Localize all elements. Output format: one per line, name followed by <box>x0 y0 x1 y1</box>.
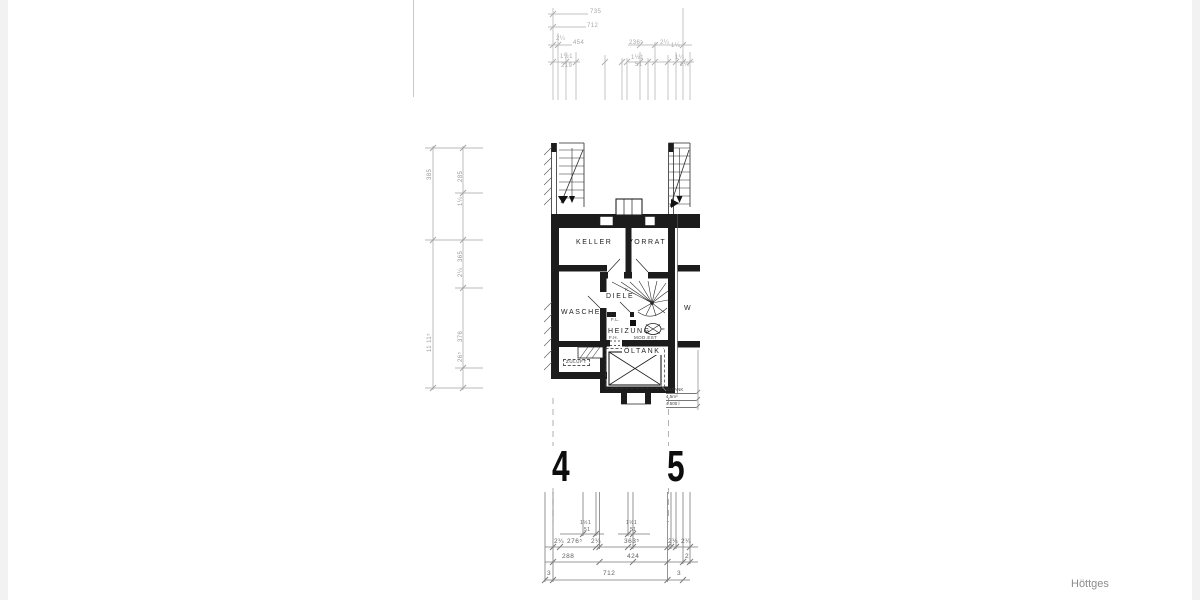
axis-grid-lines <box>553 398 669 522</box>
dim-label: 51 <box>584 528 591 533</box>
dim-label: 1½1 <box>631 55 644 61</box>
dim-label: 1¼ <box>675 55 684 61</box>
zuluft-shaft <box>578 347 603 358</box>
modest-label: MOD.EST <box>634 336 657 341</box>
dim-label: 1¼ <box>671 43 680 49</box>
dim-label: 2¼ <box>680 62 689 68</box>
room-label-keller: KELLER <box>576 239 612 246</box>
zuluft-label: ZULUFT <box>563 359 590 366</box>
dim-label: 712 <box>603 571 615 578</box>
dim-label: 1¼ <box>458 197 464 206</box>
dim-label: 3 <box>547 571 551 578</box>
dim-label: 2¼ <box>660 40 669 46</box>
dim-label: 385 <box>427 169 433 180</box>
dim-label: 51 <box>630 528 637 533</box>
entry-stair-left <box>552 143 585 214</box>
dim-label: 454 <box>573 40 584 46</box>
dim-label: 363⁵ <box>624 539 640 546</box>
axis-label-4: 4 <box>552 445 570 489</box>
room-label-neighbor: W <box>684 305 692 312</box>
fh-label: F.H. <box>609 336 619 341</box>
dim-label: 2¼ <box>668 539 678 546</box>
dim-label: 288 <box>562 554 574 561</box>
dim-label: 2¼ <box>554 539 564 546</box>
dim-label: 376 <box>458 331 464 342</box>
dim-label: 276⁵ <box>567 539 583 546</box>
dim-label: 2¼ <box>591 539 601 546</box>
dim-label: 51 <box>635 62 642 68</box>
dim-label: 1½1 <box>626 521 637 526</box>
dim-label: 1½1 <box>560 54 573 60</box>
dim-label: 219 <box>561 63 572 69</box>
dim-label: 236⁵ <box>629 40 643 46</box>
left-dimension-lines <box>425 145 483 391</box>
axis-label-5: 5 <box>667 445 685 489</box>
tank-note-line: ÖLTANK <box>666 388 696 394</box>
room-label-oeltank: ÖLTANK <box>622 348 663 355</box>
room-label-diele: DIELE <box>606 293 634 300</box>
room-label-vorrat: VORRAT <box>628 239 666 246</box>
dim-label: 285 <box>458 171 464 182</box>
earth-hatch <box>544 147 552 370</box>
watermark-hoettges: Höttges <box>1071 579 1109 590</box>
tank-note: ÖLTANK 4,5m³ 4.500 l <box>666 388 696 409</box>
scanned-floorplan-sheet: 735 712 454 2¼ 1½1 219 236⁵ 2¼ 1¼ 1½1 51… <box>0 0 1200 600</box>
fl-label: F.L. <box>611 318 620 323</box>
plan-linework <box>0 0 1200 600</box>
dim-label: 3 <box>677 571 681 578</box>
dim-label: 1½1 <box>580 521 591 526</box>
tank-note-line: 4,5m³ <box>666 395 696 401</box>
dim-label: 712 <box>587 23 598 29</box>
stair-k-label: K <box>625 288 628 293</box>
dim-label: 26⁵ <box>458 352 464 362</box>
room-label-waschen: WASCHEN <box>561 309 608 316</box>
room-label-heizung: HEIZUNG <box>608 328 651 335</box>
dim-label: 424 <box>627 554 639 561</box>
dim-label: 2¼ <box>458 268 464 277</box>
dim-label: 2 <box>685 554 689 561</box>
dim-label: 735 <box>590 9 601 15</box>
dim-label: 365 <box>458 251 464 262</box>
dim-label: 2¼ <box>556 36 565 42</box>
dim-label: 2¼ <box>681 539 691 546</box>
dim-label: 11 11⁵ <box>427 333 433 352</box>
tank-note-line: 4.500 l <box>666 402 696 408</box>
